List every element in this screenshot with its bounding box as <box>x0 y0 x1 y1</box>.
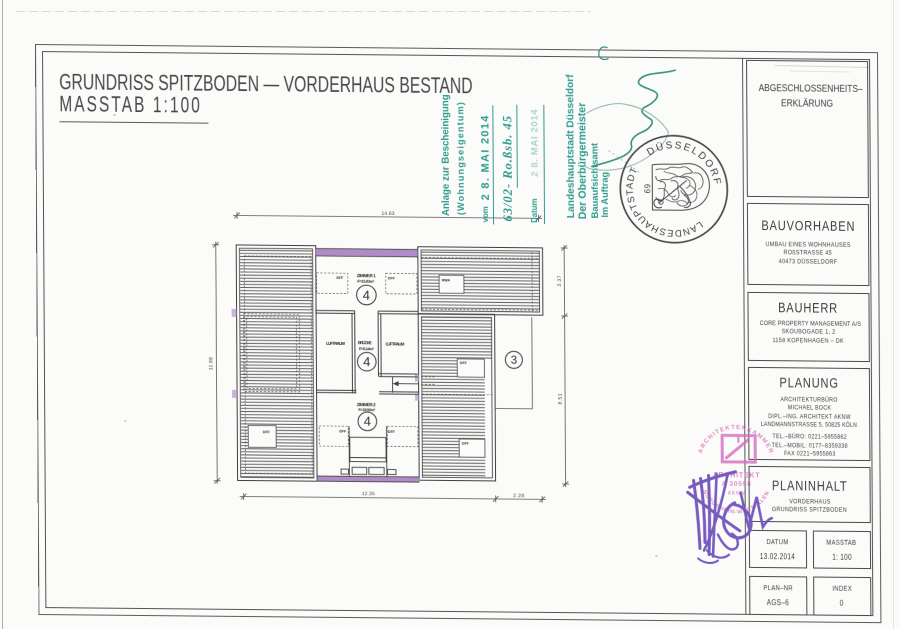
svg-text:DFF: DFF <box>263 430 271 434</box>
svg-text:LUFTRAUM: LUFTRAUM <box>326 341 345 346</box>
svg-text:12.35: 12.35 <box>362 491 375 497</box>
svg-text:DFF: DFF <box>388 430 396 434</box>
svg-text:DFF: DFF <box>388 276 396 280</box>
svg-text:3: 3 <box>511 355 517 367</box>
svg-text:DFF: DFF <box>460 361 468 365</box>
svg-text:DFF: DFF <box>336 276 344 280</box>
svg-text:F=18.50m²: F=18.50m² <box>358 407 376 412</box>
svg-text:RWA: RWA <box>442 278 451 282</box>
svg-text:69: 69 <box>642 184 651 194</box>
svg-text:LUFTRAUM: LUFTRAUM <box>385 341 404 346</box>
svg-text:11.88: 11.88 <box>208 357 214 370</box>
svg-text:8.51: 8.51 <box>558 393 564 404</box>
svg-text:AKNW: AKNW <box>728 491 746 497</box>
svg-text:F=5.14m²: F=5.14m² <box>359 346 375 351</box>
svg-text:4: 4 <box>363 354 370 369</box>
svg-text:DFF: DFF <box>339 429 347 433</box>
svg-text:4: 4 <box>364 414 371 429</box>
svg-text:F=15.93m²: F=15.93m² <box>357 278 375 283</box>
svg-text:4: 4 <box>363 287 370 302</box>
svg-text:14.63: 14.63 <box>381 211 394 217</box>
svg-text:DFF: DFF <box>462 441 470 445</box>
svg-text:2.28: 2.28 <box>513 493 524 499</box>
svg-text:BRÜCKE: BRÜCKE <box>358 340 372 345</box>
svg-text:3.37: 3.37 <box>557 275 563 286</box>
